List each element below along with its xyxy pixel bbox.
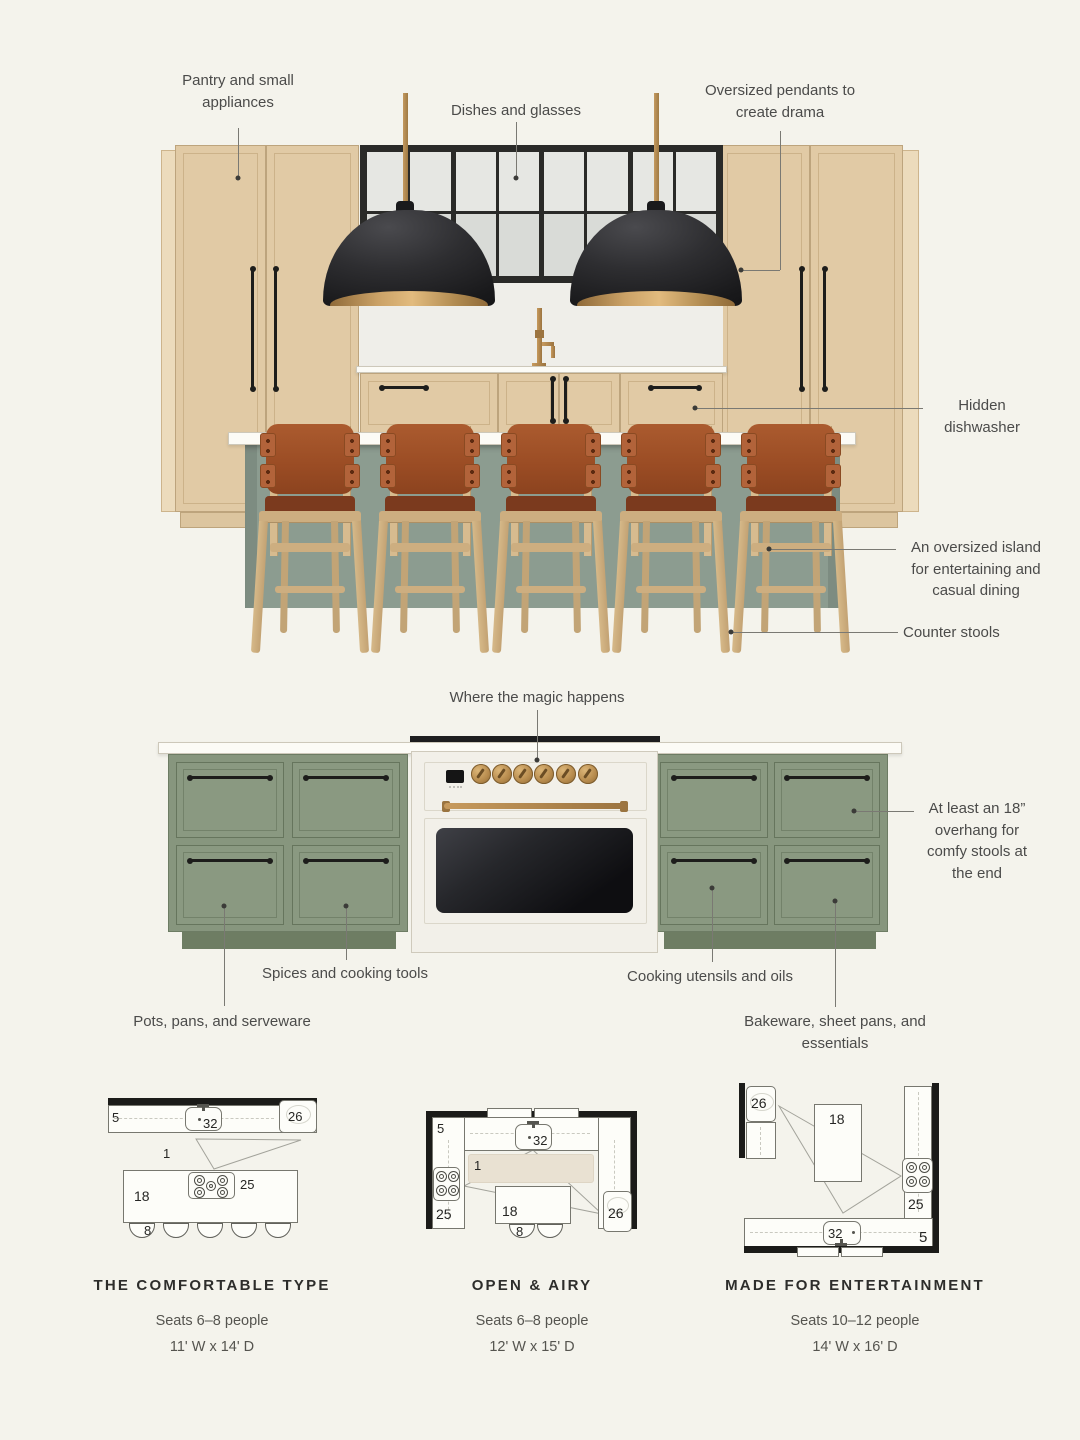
plan3-centerline <box>918 1092 919 1212</box>
pendant-brass-rim <box>577 291 735 306</box>
stool-back <box>507 424 595 494</box>
stool-leg <box>451 521 460 633</box>
annotation-island: An oversized island for entertaining and… <box>901 537 1051 602</box>
pendant-brass-rim <box>330 291 488 306</box>
stool-leg <box>521 521 530 633</box>
counter-stool <box>739 424 843 656</box>
plan1-seats: Seats 6–8 people <box>77 1313 347 1329</box>
stool-footrest <box>390 543 470 552</box>
drawer-handle <box>673 776 755 779</box>
plan1-faucet-icon <box>197 1104 209 1107</box>
leader-dot <box>729 630 734 635</box>
plan3-window <box>841 1247 883 1257</box>
stool-strap <box>464 433 480 457</box>
plan2-island-label: 18 <box>502 1203 518 1219</box>
glass-pane <box>499 152 539 211</box>
plan3-seats: Seats 10–12 people <box>705 1313 1005 1329</box>
plan2-stool <box>537 1224 563 1238</box>
plan2-sink-label: 32 <box>533 1133 547 1148</box>
leader-dot <box>852 809 857 814</box>
burner <box>919 1162 930 1173</box>
leader-dot <box>767 547 772 552</box>
annotation-pots: Pots, pans, and serveware <box>127 1011 317 1033</box>
drawer <box>176 762 284 838</box>
glass-pane <box>410 152 450 211</box>
leader-dot <box>710 886 715 891</box>
plan3-oven-label: 26 <box>751 1095 767 1111</box>
stool-strap <box>501 433 517 457</box>
drawer <box>660 845 768 925</box>
stool-strap <box>260 464 276 488</box>
plan3-sink-dot <box>852 1231 855 1234</box>
stool-back <box>386 424 474 494</box>
stool-strap <box>380 433 396 457</box>
faucet-spout-tip <box>551 346 555 358</box>
burner <box>194 1175 205 1186</box>
drawer-handle <box>786 776 868 779</box>
leader-line <box>771 549 896 550</box>
stool-rail <box>379 511 481 523</box>
plan1-oven-label: 26 <box>288 1109 302 1124</box>
leader-dot <box>222 904 227 909</box>
leader-line <box>856 811 914 812</box>
plan3-sink-label: 32 <box>828 1226 842 1241</box>
range-knob <box>556 764 576 784</box>
leader-line <box>238 128 239 178</box>
stool-rail <box>500 511 602 523</box>
burner <box>919 1176 930 1187</box>
stool-footrest <box>751 543 831 552</box>
burner <box>448 1171 459 1182</box>
glass-pane <box>499 214 539 276</box>
annotation-spices: Spices and cooking tools <box>260 963 430 985</box>
burner <box>217 1187 228 1198</box>
plan1-title: THE COMFORTABLE TYPE <box>77 1277 347 1294</box>
stool-leg <box>641 521 650 633</box>
stool-strap <box>825 464 841 488</box>
plan3-island-label: 18 <box>829 1111 845 1127</box>
kitchen-infographic: Pantry and small appliances Dishes and g… <box>0 0 1080 1440</box>
plan3-counter-label: 5 <box>919 1229 927 1246</box>
stool-leg <box>400 521 409 633</box>
stool-leg <box>331 521 340 633</box>
leader-dot <box>514 176 519 181</box>
stool-strap <box>705 433 721 457</box>
leader-dot <box>535 758 540 763</box>
range-knob <box>492 764 512 784</box>
stool-leg <box>761 521 770 633</box>
plan1-counter-label: 5 <box>112 1110 119 1125</box>
drawer-handle <box>189 859 271 862</box>
plan1-zone-label: 1 <box>163 1146 170 1161</box>
cabinet-kick <box>182 932 396 949</box>
stool-strap <box>621 464 637 488</box>
plan1-stool <box>163 1223 189 1238</box>
annotation-dishes: Dishes and glasses <box>436 100 596 122</box>
plan1-stool <box>197 1223 223 1238</box>
faucet <box>537 308 542 368</box>
burner <box>217 1175 228 1186</box>
plan3-wall-left <box>739 1083 745 1158</box>
stool-strap <box>741 464 757 488</box>
stool-strap <box>825 433 841 457</box>
plan2-stool-label: 8 <box>516 1224 523 1239</box>
annotation-overhang: At least an 18” overhang for comfy stool… <box>918 798 1036 884</box>
glass-pane <box>456 152 496 211</box>
stool-stretcher <box>516 586 586 593</box>
leader-line <box>224 908 225 1006</box>
range-knob <box>513 764 533 784</box>
drawer-handle <box>673 859 755 862</box>
faucet-collar <box>535 330 544 338</box>
annotation-magic: Where the magic happens <box>437 687 637 709</box>
leader-dot <box>833 899 838 904</box>
burner <box>194 1187 205 1198</box>
glass-pane <box>544 152 584 211</box>
counter-stool <box>499 424 603 656</box>
stool-strap <box>705 464 721 488</box>
dishwasher-handle <box>650 386 700 389</box>
leader-line <box>346 908 347 960</box>
pendant-stem <box>654 93 659 209</box>
leader-line <box>697 408 923 409</box>
range-display-dots <box>448 786 462 788</box>
stool-stretcher <box>756 586 826 593</box>
plan3-size: 14' W x 16' D <box>705 1339 1005 1355</box>
stool-strap <box>380 464 396 488</box>
counter-stool <box>619 424 723 656</box>
burner <box>436 1185 447 1196</box>
leader-line <box>835 903 836 1007</box>
plan1-sink-dot <box>198 1118 201 1121</box>
annotation-dishwasher: Hidden dishwasher <box>927 395 1037 438</box>
range-knob <box>534 764 554 784</box>
cabinet-kick <box>664 932 876 949</box>
leader-line <box>516 122 517 176</box>
leader-line <box>733 632 898 633</box>
drawer <box>292 762 400 838</box>
oven-window <box>436 828 633 913</box>
tall-cabinet-handle-right <box>823 268 826 390</box>
plan1-island-label: 18 <box>134 1188 150 1204</box>
range-display <box>446 770 464 783</box>
leader-dot <box>739 268 744 273</box>
glass-pane <box>676 152 716 211</box>
stool-stretcher <box>395 586 465 593</box>
stool-leg <box>833 521 850 653</box>
stool-strap <box>621 433 637 457</box>
drawer-handle <box>305 859 387 862</box>
base-handle-left <box>381 386 427 389</box>
base-countertop <box>356 366 727 373</box>
stool-footrest <box>511 543 591 552</box>
burner <box>436 1171 447 1182</box>
leader-dot <box>236 176 241 181</box>
stool-leg <box>692 521 701 633</box>
annotation-bakeware: Bakeware, sheet pans, and essentials <box>735 1011 935 1054</box>
drawer-handle <box>305 776 387 779</box>
sink-door-handle-right <box>564 378 567 422</box>
stool-footrest <box>631 543 711 552</box>
annotation-utensils: Cooking utensils and oils <box>615 966 805 988</box>
plan1-cooktop-label: 25 <box>240 1177 254 1192</box>
plan3-cooktop-label: 25 <box>908 1196 924 1212</box>
stool-strap <box>501 464 517 488</box>
burner <box>906 1162 917 1173</box>
glass-pane <box>587 152 627 211</box>
drawer <box>176 845 284 925</box>
plan2-seats: Seats 6–8 people <box>397 1313 667 1329</box>
stool-back <box>627 424 715 494</box>
pantry-handle-left <box>251 268 254 390</box>
plan2-oven-label: 26 <box>608 1205 624 1221</box>
drawer-handle <box>189 776 271 779</box>
sink-door-handle-left <box>551 378 554 422</box>
plan2-sink-dot <box>528 1136 531 1139</box>
plan2-counter-label: 5 <box>437 1121 444 1136</box>
range-handle <box>444 803 626 809</box>
plan1-size: 11' W x 14' D <box>77 1339 347 1355</box>
leader-line <box>743 270 780 271</box>
annotation-pantry: Pantry and small appliances <box>172 70 304 113</box>
burner <box>448 1185 459 1196</box>
counter-stool <box>258 424 362 656</box>
stool-strap <box>741 433 757 457</box>
leader-line <box>712 890 713 962</box>
stool-strap <box>585 433 601 457</box>
stool-strap <box>585 464 601 488</box>
plan2-size: 12' W x 15' D <box>397 1339 667 1355</box>
annotation-pendants: Oversized pendants to create drama <box>690 80 870 123</box>
leader-line <box>780 131 781 270</box>
stool-rail <box>259 511 361 523</box>
burner <box>906 1176 917 1187</box>
plan3-wall-right <box>932 1083 939 1253</box>
drawer <box>774 845 880 925</box>
pantry-handle-right <box>274 268 277 390</box>
plan2-faucet-icon <box>527 1121 539 1124</box>
stool-stretcher <box>636 586 706 593</box>
plan2-title: OPEN & AIRY <box>397 1277 667 1294</box>
stool-rail <box>740 511 842 523</box>
stool-rail <box>620 511 722 523</box>
stool-stretcher <box>275 586 345 593</box>
plan3-window <box>797 1247 839 1257</box>
drawer <box>774 762 880 838</box>
pendant-stem <box>403 93 408 209</box>
stool-strap <box>344 464 360 488</box>
counter-stool <box>378 424 482 656</box>
tall-cabinet-handle-left <box>800 268 803 390</box>
plan2-cooktop-label: 25 <box>436 1206 452 1222</box>
range-knob <box>471 764 491 784</box>
leader-line <box>537 710 538 758</box>
stool-leg <box>812 521 821 633</box>
plan1-sink-label: 32 <box>203 1116 217 1131</box>
plan1-stool <box>231 1223 257 1238</box>
range-knob <box>578 764 598 784</box>
stool-strap <box>464 464 480 488</box>
leader-dot <box>693 406 698 411</box>
leader-dot <box>344 904 349 909</box>
plan3-cabinet <box>746 1122 776 1159</box>
drawer <box>660 762 768 838</box>
plan2-zone-label: 1 <box>474 1158 481 1173</box>
stool-strap <box>344 433 360 457</box>
annotation-stools: Counter stools <box>903 622 1053 644</box>
stool-footrest <box>270 543 350 552</box>
plan3-centerline <box>760 1127 761 1155</box>
right-cabinet-side-panel <box>901 150 919 512</box>
plan3-title: MADE FOR ENTERTAINMENT <box>705 1277 1005 1294</box>
plan1-stool-label: 8 <box>144 1223 151 1238</box>
drawer-handle <box>786 859 868 862</box>
stool-back <box>747 424 835 494</box>
stool-leg <box>572 521 581 633</box>
stool-leg <box>280 521 289 633</box>
stool-back <box>266 424 354 494</box>
burner <box>206 1181 216 1191</box>
plan1-stool <box>265 1223 291 1238</box>
plan2-rug <box>468 1154 594 1183</box>
stool-strap <box>260 433 276 457</box>
